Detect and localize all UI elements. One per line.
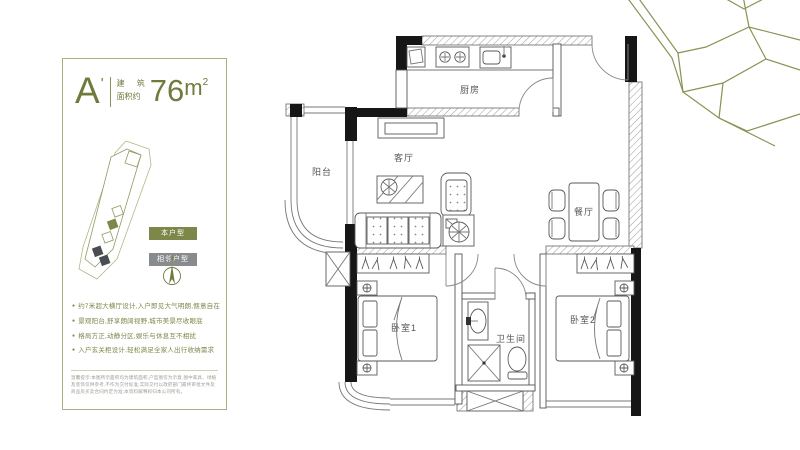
shower-icon (468, 345, 500, 381)
bedroom1-furniture (357, 254, 437, 375)
room-label-bedroom2: 卧室2 (570, 314, 596, 325)
feature-item: ●约7米超大横厅设计,入户即见大气明朗,惬意自在 (72, 303, 222, 311)
bullet-icon: ● (72, 318, 75, 325)
sofa-icon (355, 213, 441, 248)
area-value: 76 m 2 (150, 75, 208, 106)
fridge-icon (407, 47, 425, 67)
site-plan-map (71, 137, 171, 302)
armchair-icon (441, 173, 471, 217)
plant-icon (443, 215, 474, 246)
panel-divider (71, 370, 218, 371)
legend-self-unit: 本户型 (149, 227, 197, 240)
feature-item: ●入户玄关柜设计,轻松满足全家人出行收纳需求 (72, 347, 222, 355)
tv-cabinet-icon (378, 118, 444, 138)
room-label-balcony: 阳台 (312, 166, 332, 177)
bed-icon (556, 296, 629, 361)
floorplan-page: 厨房 客厅 阳台 餐厅 卧室1 卫生间 卧室2 A ' 建 筑 面积约 76 m… (0, 0, 800, 450)
info-panel: A ' 建 筑 面积约 76 m 2 本户型 相邻户型 (62, 58, 227, 410)
room-label-bedroom1: 卧室1 (391, 322, 417, 333)
wardrobe-icon (357, 254, 429, 273)
room-label-dining: 餐厅 (574, 206, 594, 217)
living-room-furniture (355, 118, 474, 248)
bullet-icon: ● (72, 303, 75, 310)
feature-item: ●格局方正,动静分区,娱乐与休息互不相扰 (72, 333, 222, 341)
washbasin-icon (466, 302, 488, 340)
feature-list: ●约7米超大横厅设计,入户即见大气明朗,惬意自在 ●景观阳台,舒享朗阔视野,城市… (72, 303, 222, 362)
bullet-icon: ● (72, 333, 75, 340)
bullet-icon: ● (72, 347, 75, 354)
sink-icon (480, 46, 511, 68)
kitchen-fixtures (407, 46, 553, 70)
room-label-bathroom: 卫生间 (496, 333, 526, 344)
disclaimer-text: 温馨提示:本图所示面积均为建筑面积,户型图仅为示意,图中家具、绿植及装饰仅供参考… (71, 375, 219, 396)
stove-icon (436, 47, 469, 67)
room-label-kitchen: 厨房 (460, 84, 480, 95)
feature-item: ●景观阳台,舒享朗阔视野,城市美景尽收眼底 (72, 318, 222, 326)
wardrobe-icon (577, 254, 634, 273)
compass-dial (161, 263, 183, 287)
gem-wireframe-decoration (626, 0, 800, 146)
title-divider (110, 77, 111, 107)
compass-icon: 北 (157, 257, 187, 287)
unit-prime: ' (101, 76, 104, 91)
coffee-table-icon (377, 176, 423, 203)
unit-title: A ' 建 筑 面积约 76 m 2 (75, 75, 208, 107)
unit-letter: A (75, 75, 100, 106)
toilet-icon (508, 347, 527, 379)
room-label-living: 客厅 (394, 152, 414, 163)
area-label: 建 筑 面积约 (117, 78, 150, 104)
